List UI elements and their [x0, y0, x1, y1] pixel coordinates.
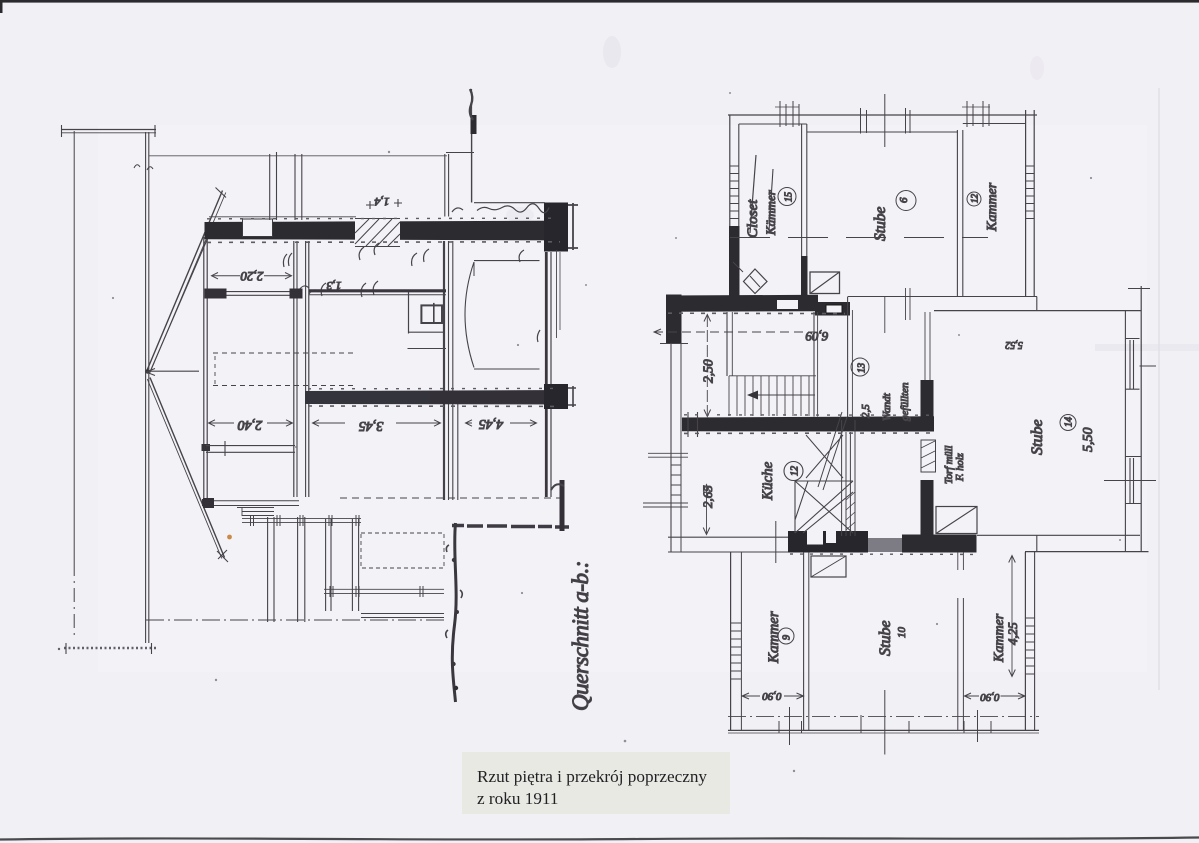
- svg-text:2,50: 2,50: [701, 359, 716, 383]
- svg-text:5,52: 5,52: [1005, 339, 1023, 350]
- svg-text:1,4: 1,4: [375, 195, 390, 209]
- svg-text:Stube: Stube: [1029, 419, 1046, 455]
- svg-text:2,5: 2,5: [860, 404, 872, 418]
- svg-text:2,65: 2,65: [700, 485, 715, 508]
- svg-text:12: 12: [970, 194, 980, 204]
- svg-text:10: 10: [896, 627, 908, 639]
- svg-text:2,40: 2,40: [238, 417, 263, 432]
- svg-text:4,45: 4,45: [479, 416, 504, 431]
- svg-text:Stube: Stube: [877, 620, 894, 656]
- svg-text:Kammer: Kammer: [985, 182, 1000, 232]
- svg-text:6,09: 6,09: [805, 329, 828, 344]
- svg-text:Wandt: Wandt: [881, 392, 893, 421]
- svg-text:Stube: Stube: [872, 206, 889, 241]
- svg-text:Querschnitt a-b.:: Querschnitt a-b.:: [568, 561, 593, 711]
- svg-text:0,90: 0,90: [762, 690, 782, 702]
- svg-text:15: 15: [784, 192, 795, 202]
- svg-text:9: 9: [782, 635, 793, 640]
- svg-text:12: 12: [790, 466, 801, 476]
- svg-text:Torf müll: Torf müll: [944, 445, 955, 484]
- svg-text:5,50: 5,50: [1081, 428, 1096, 453]
- svg-text:F. holz: F. holz: [955, 453, 966, 482]
- svg-text:3,45: 3,45: [359, 418, 385, 433]
- svg-text:2,20: 2,20: [240, 269, 263, 284]
- svg-text:4,25: 4,25: [1005, 622, 1020, 645]
- svg-text:0,90: 0,90: [980, 691, 1000, 703]
- svg-text:Küche: Küche: [760, 461, 776, 501]
- svg-text:Closet: Closet: [745, 199, 761, 238]
- svg-text:14: 14: [1064, 417, 1075, 427]
- svg-text:Rzut piętra i przekrój poprzec: Rzut piętra i przekrój poprzeczny: [477, 767, 707, 786]
- svg-text:13: 13: [857, 363, 868, 373]
- svg-text:z roku 1911: z roku 1911: [477, 789, 558, 808]
- svg-text:Kammer: Kammer: [766, 611, 782, 664]
- svg-text:6: 6: [898, 197, 910, 203]
